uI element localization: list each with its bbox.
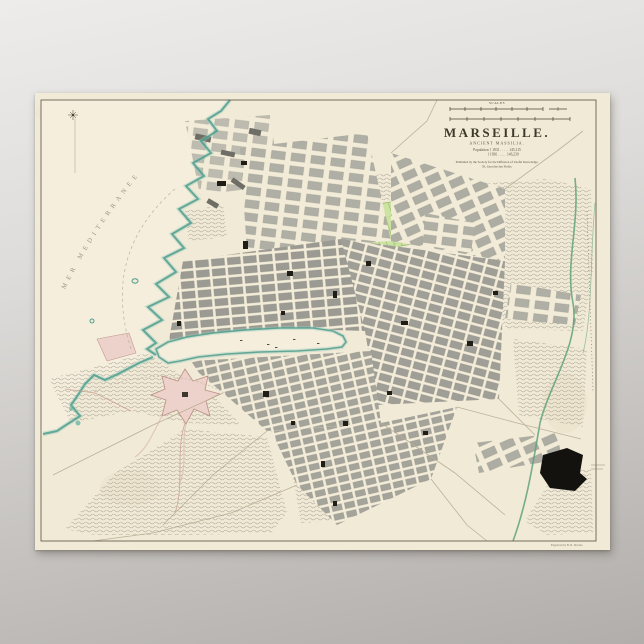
scales-label: SCALES <box>489 101 505 105</box>
marseille-map: MER MEDITERRANEE <box>35 93 610 550</box>
map-subtitle: ANCIENT MASSILIA. <box>469 141 524 146</box>
publisher-text-1: Published by the Society for the Diffusi… <box>456 160 539 164</box>
engraver-credit: Engraved by B. R. Davies. <box>551 543 583 547</box>
map-title: MARSEILLE. <box>444 125 550 140</box>
scene-background: MER MEDITERRANEE <box>0 0 644 644</box>
map-poster: MER MEDITERRANEE <box>35 93 610 550</box>
